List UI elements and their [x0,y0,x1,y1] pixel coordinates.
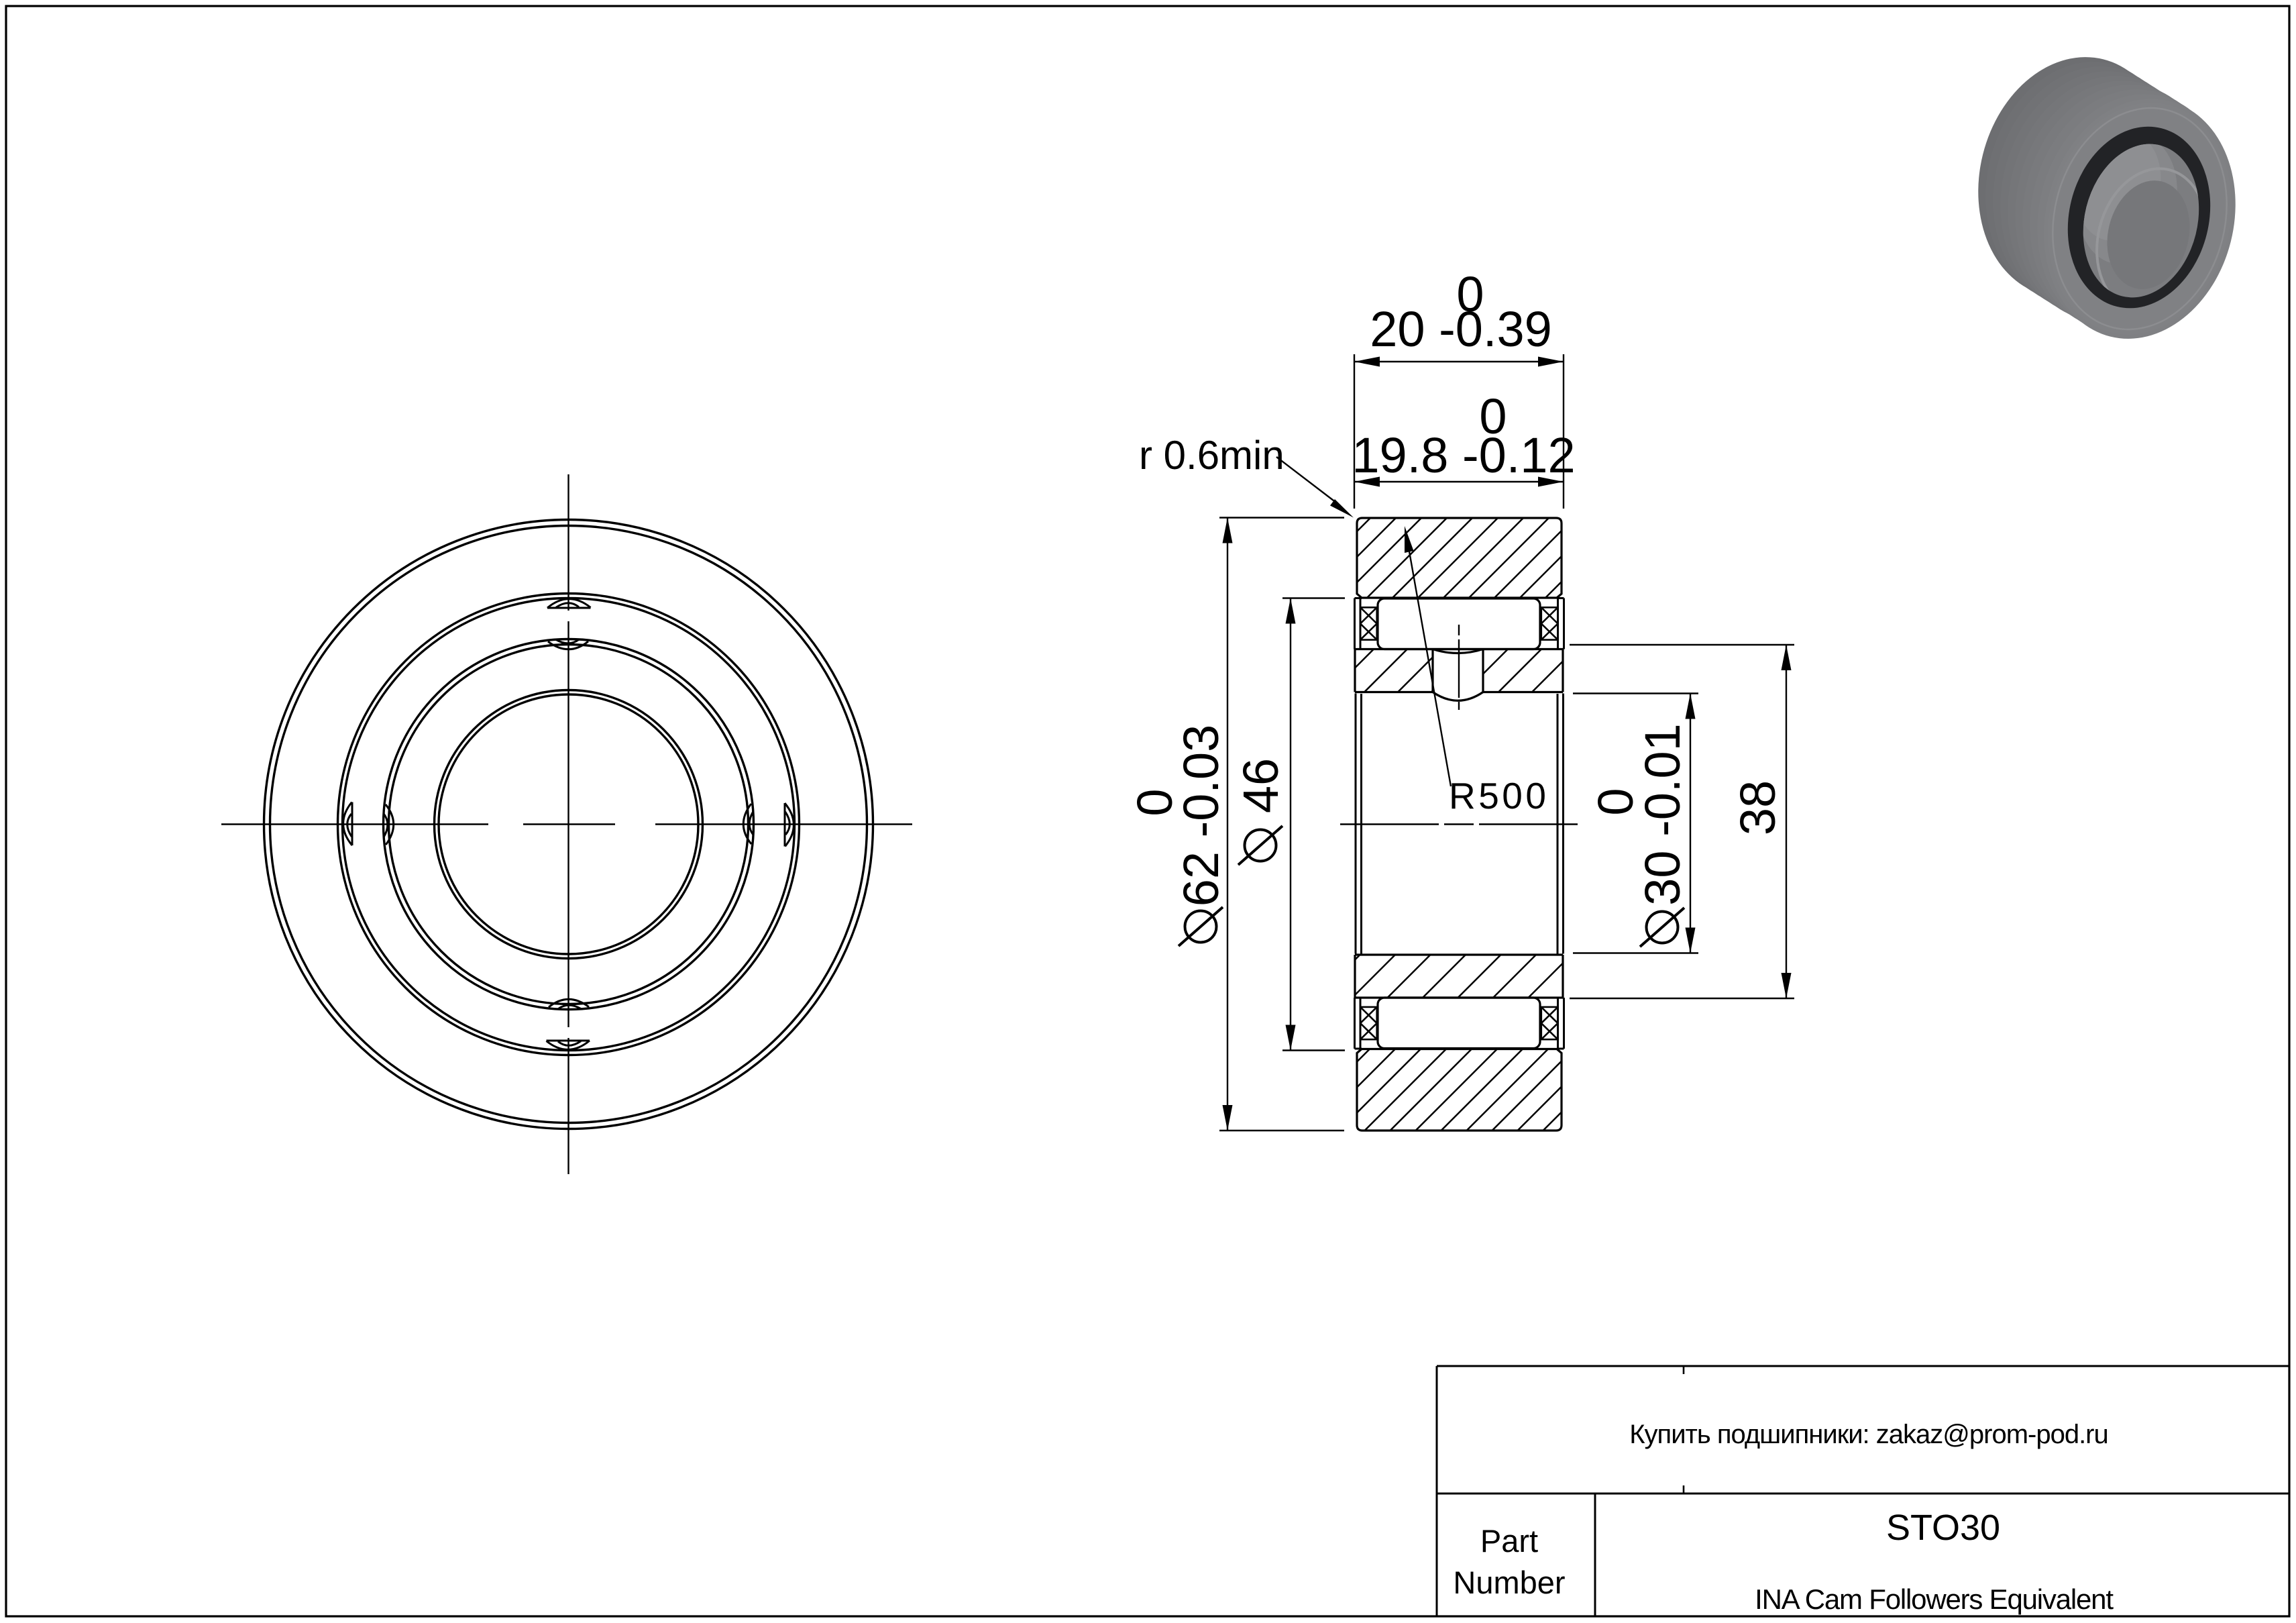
svg-text:38: 38 [1730,780,1786,835]
svg-text:19.8 -0.12: 19.8 -0.12 [1352,427,1575,483]
svg-text:0: 0 [1588,788,1643,815]
svg-text:Купить подшипники: zakaz@prom-: Купить подшипники: zakaz@prom-pod.ru [1629,1420,2108,1449]
svg-text:r 0.6min: r 0.6min [1139,433,1284,478]
svg-text:R500: R500 [1449,775,1549,817]
svg-text:INA Cam Followers Equivalent: INA Cam Followers Equivalent [1755,1583,2114,1615]
svg-text:20 -0.39: 20 -0.39 [1370,301,1552,357]
svg-text:0: 0 [1127,788,1183,816]
svg-text:Number: Number [1453,1565,1565,1600]
svg-text:STO30: STO30 [1886,1508,2000,1548]
svg-text:Part: Part [1480,1523,1538,1559]
svg-text:46: 46 [1233,758,1289,813]
